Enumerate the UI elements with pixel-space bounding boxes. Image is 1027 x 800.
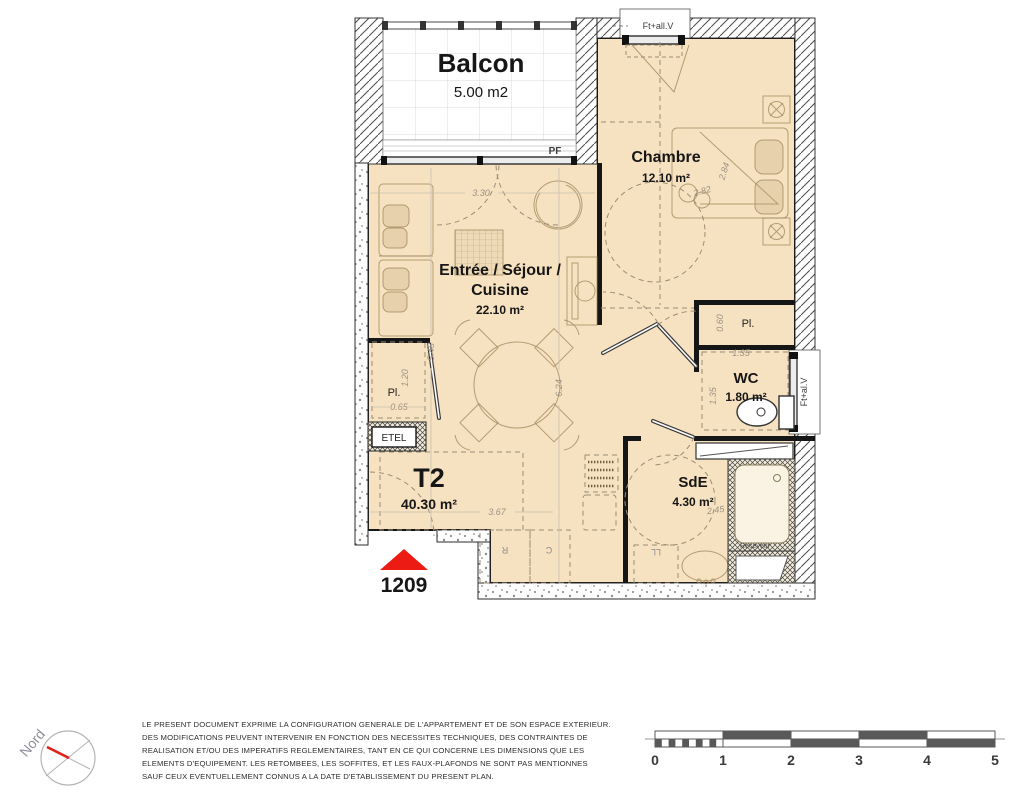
balcony-right-wall [576,18,597,164]
entrance-arrow [380,549,428,570]
chambre-window-label: Ft+all.V [643,21,674,31]
wall-sde-top-stub [623,436,641,441]
room-label-wc: WC [734,370,759,387]
label-washer: LL [651,547,661,557]
chambre-window-post-right [678,35,685,45]
pillow [755,140,783,174]
room-label-sde: SdE [678,474,707,491]
room-area-sejour: 22.10 m² [476,303,524,317]
dim-065: 0.65 [390,402,409,412]
compass: Nord [16,726,95,785]
room-area-sde: 4.30 m² [672,495,713,509]
scale-seg [791,739,859,747]
room-label-sejour-2: Cuisine [471,282,529,299]
bottom-step-wall [437,530,490,542]
wc-window-label: Ft+al.V [799,378,809,407]
scale-seg [723,731,791,739]
floor-plan-page: Balcon 5.00 m2 PF Ft+all.V Ft+al.V [0,0,1027,800]
disclaimer-line: ELEMENTS D'EQUIPEMENT. LES RETOMBEES, LE… [142,759,588,768]
room-area-wc: 1.80 m² [725,390,766,404]
scale-tick: 1 [719,752,727,768]
scale-tick: 0 [651,752,659,768]
balcony: Balcon 5.00 m2 PF [381,21,577,165]
dim-545: 5.45 [426,342,436,361]
scale-ticks: 0 1 2 3 4 5 [651,752,999,768]
wc-window-post-top [789,352,798,359]
disclaimer-line: REALISATION ET/OU DES IMPERATIFS REGLEME… [142,746,584,755]
floor-plan-drawing: Balcon 5.00 m2 PF Ft+all.V Ft+al.V [0,0,1027,800]
chambre-window-bar [626,36,682,44]
entrance-mark: 1209 [380,549,428,597]
sofa-cushion [383,292,407,312]
dim-135a: 1.35 [732,348,751,358]
unit-area: 40.30 m² [401,496,457,512]
room-label-pl-right: Pl. [742,318,755,330]
room-label-chambre: Chambre [631,149,700,166]
scale-tick: 3 [855,752,863,768]
scale-seg [927,731,995,739]
dim-135b: 1.35 [708,386,718,405]
disclaimer: LE PRESENT DOCUMENT EXPRIME LA CONFIGURA… [142,720,611,781]
dim-120: 1.20 [400,369,410,387]
sofa-cushion [383,228,407,248]
etel: ETEL [368,422,426,451]
scale-tick: 5 [991,752,999,768]
left-wall [355,163,368,545]
shower-screen [736,556,788,580]
chambre-window-post-left [622,35,629,45]
room-label-pl-left: Pl. [388,387,401,399]
wall-wc-sde [694,436,815,441]
unit-type: T2 [413,463,445,493]
scale-seg [723,739,791,747]
dim-367: 3.67 [488,507,507,517]
label-fridge: R [501,545,508,555]
wall-pl-left [694,300,699,350]
disclaimer-line: LE PRESENT DOCUMENT EXPRIME LA CONFIGURA… [142,720,611,729]
disclaimer-line: SAUF CEUX EVENTUELLEMENT CONNUS A LA DAT… [142,772,494,781]
dim-060: 0.60 [715,314,725,332]
toilet-tank [779,396,794,429]
wall-wc-left-stub [694,350,699,372]
wall-sejour-chambre [597,163,602,325]
sofa-cushion [383,205,409,227]
bottom-wall [478,583,815,599]
balcony-left-wall [355,18,383,164]
right-wall-lower [795,432,815,583]
sofa-cushion [383,268,409,290]
room-area-chambre: 12.10 m² [642,171,690,185]
compass-north-needle [47,747,69,758]
shower-tray [735,465,789,543]
scale-seg [927,739,995,747]
room-label-balcon: Balcon [438,48,525,78]
compass-label: Nord [16,726,48,760]
etel-label: ETEL [381,433,406,444]
pf-label: PF [549,146,562,157]
disclaimer-line: DES MODIFICATIONS PEUVENT INTERVENIR EN … [142,733,588,742]
scale-tick: 2 [787,752,795,768]
chambre-top-wall-left [597,18,622,38]
receveur-label: Receveur [740,543,771,550]
scale-bar: 0 1 2 3 4 5 [645,731,1005,768]
label-cooker: C [545,545,552,555]
pillow [755,180,783,214]
balcony-railing [383,22,576,29]
scale-seg [859,731,927,739]
scale-seg [655,731,723,739]
wall-sde-left [623,441,628,583]
scale-seg [791,731,859,739]
right-wall-upper [795,18,815,352]
scale-tick: 4 [923,752,931,768]
balcony-sill [383,140,576,157]
unit-number: 1209 [381,574,428,597]
dim-624: 6.24 [554,379,564,397]
chambre-top-wall-right [688,18,795,38]
room-area-balcon: 5.00 m2 [454,84,508,101]
wall-pl-top [694,300,795,305]
scale-seg [859,739,927,747]
room-label-sejour-1: Entrée / Séjour / [439,262,561,279]
dim-330: 3.30 [472,188,490,198]
